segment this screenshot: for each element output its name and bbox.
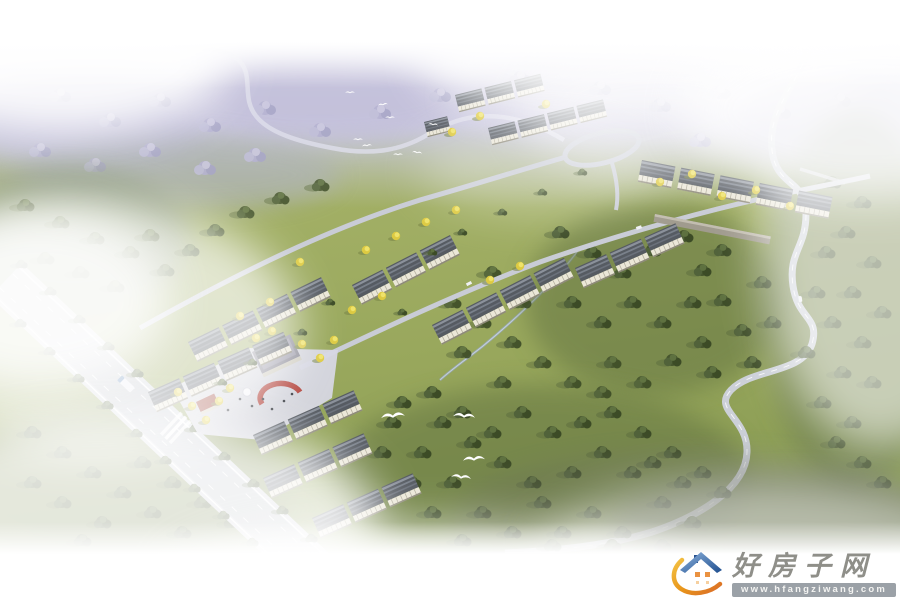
house-logo-icon — [668, 550, 730, 598]
site-name: 好房子网 — [732, 552, 876, 582]
watermark: 好房子网 www.hfangziwang.com — [668, 550, 896, 600]
site-url: www.hfangziwang.com — [732, 583, 896, 597]
top-white-band — [0, 0, 900, 42]
rendering-image: 好房子网 www.hfangziwang.com — [0, 0, 900, 600]
aerial-rendering — [0, 0, 900, 600]
top-fade — [0, 42, 900, 88]
